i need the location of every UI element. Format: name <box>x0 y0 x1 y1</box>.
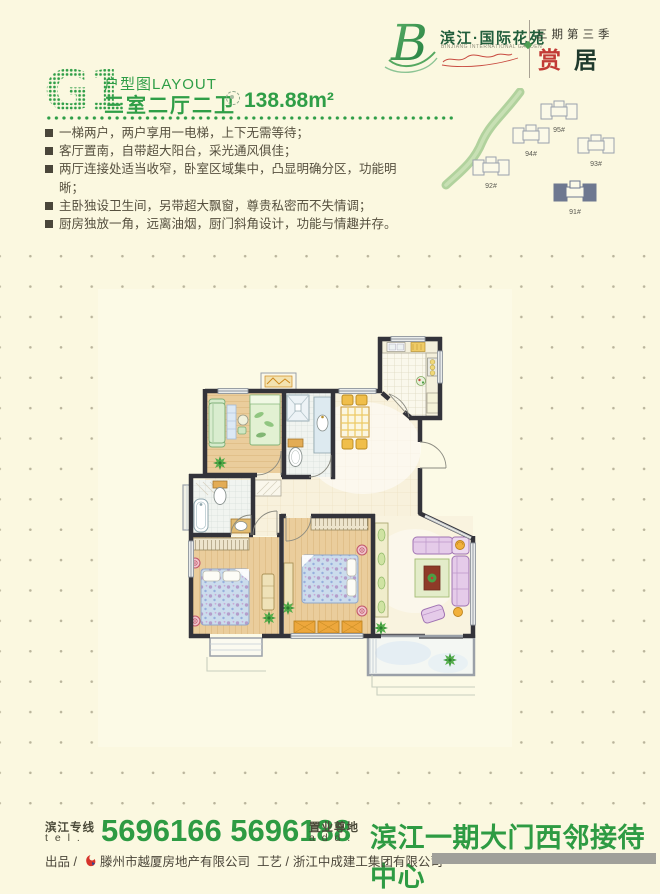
building-label: 95# <box>553 127 565 134</box>
bullet-square <box>45 147 53 155</box>
phase-char-1: 赏 <box>538 47 561 74</box>
logo-divider <box>529 20 530 78</box>
building-93 <box>578 135 614 153</box>
feature-item: 厨房独放一角，远离油烟，厨门斜角设计，功能与情趣并存。 <box>45 215 405 233</box>
developer-logo-icon <box>84 854 97 868</box>
brand-monogram-icon: B <box>383 14 441 82</box>
phase-char-2: 居 <box>574 47 597 74</box>
feature-text: 两厅连接处适当收窄，卧室区域集中，凸显明确分区，功能明晰； <box>59 160 405 196</box>
building-label: 92# <box>485 183 497 190</box>
producer-name: 滕州市越厦房地产有限公司 <box>100 851 250 870</box>
builder-name: 浙江中成建工集团有限公司 <box>293 851 443 870</box>
bullet-square <box>45 202 53 210</box>
feature-list: 一梯两户，两户享用一电梯，上下无需等待； 客厅置南，自带超大阳台，采光通风俱佳；… <box>45 124 405 233</box>
building-label: 91# <box>569 209 581 216</box>
building-95 <box>541 101 577 119</box>
building-92 <box>473 157 509 175</box>
credits-row: 出品 / 滕州市越厦房地产有限公司 工艺 / 浙江中成建工集团有限公司 <box>45 851 443 870</box>
bullet-square <box>45 165 53 173</box>
wall-art-box <box>261 373 296 390</box>
building-label: 94# <box>525 151 537 158</box>
feature-text: 厨房独放一角，远离油烟，厨门斜角设计，功能与情趣并存。 <box>59 215 397 233</box>
building-94 <box>513 125 549 143</box>
site-map: 95# 94# 93# 92# 91# <box>440 88 660 236</box>
brand-logo: B 滨江·国际花苑 BINJIANG INTERNATIONAL GARDEN … <box>383 12 659 84</box>
master-bay-window <box>207 638 266 671</box>
phase-title: 赏居 <box>538 41 597 75</box>
feature-item: 主卧独设卫生间，另带超大飘窗，尊贵私密而不失情调； <box>45 197 405 215</box>
feature-text: 主卧独设卫生间，另带超大飘窗，尊贵私密而不失情调； <box>59 197 372 215</box>
footer-gray-bar <box>432 853 656 864</box>
brand-slogan-script-icon <box>440 52 524 68</box>
balcony <box>368 636 475 695</box>
rooms-label: 三室二厅二卫 <box>104 89 236 118</box>
feature-item: 两厅连接处适当收窄，卧室区域集中，凸显明确分区，功能明晰； <box>45 160 405 196</box>
floor-plan <box>163 323 493 713</box>
feature-item: 一梯两户，两户享用一电梯，上下无需等待； <box>45 124 405 142</box>
building-label: 93# <box>590 161 602 168</box>
craft-prefix: 工艺 / <box>257 851 289 870</box>
bullet-square <box>45 129 53 137</box>
phase-label: 三期第三季 <box>536 26 614 42</box>
tel-label-en: t e l . <box>45 832 82 844</box>
dotted-separator <box>45 115 453 121</box>
feature-item: 客厅置南，自带超大阳台，采光通风俱佳； <box>45 142 405 160</box>
building-91-highlighted <box>554 181 596 201</box>
bullet-square <box>45 220 53 228</box>
stamp-icon <box>226 91 240 105</box>
feature-text: 一梯两户，两户享用一电梯，上下无需等待； <box>59 124 309 142</box>
feature-text: 客厅置南，自带超大阳台，采光通风俱佳； <box>59 142 297 160</box>
area-value: 138.88m² <box>244 89 334 113</box>
hall-closet <box>255 480 281 496</box>
addr-label-en: a d d . <box>309 832 352 844</box>
producer-prefix: 出品 / <box>45 851 77 870</box>
